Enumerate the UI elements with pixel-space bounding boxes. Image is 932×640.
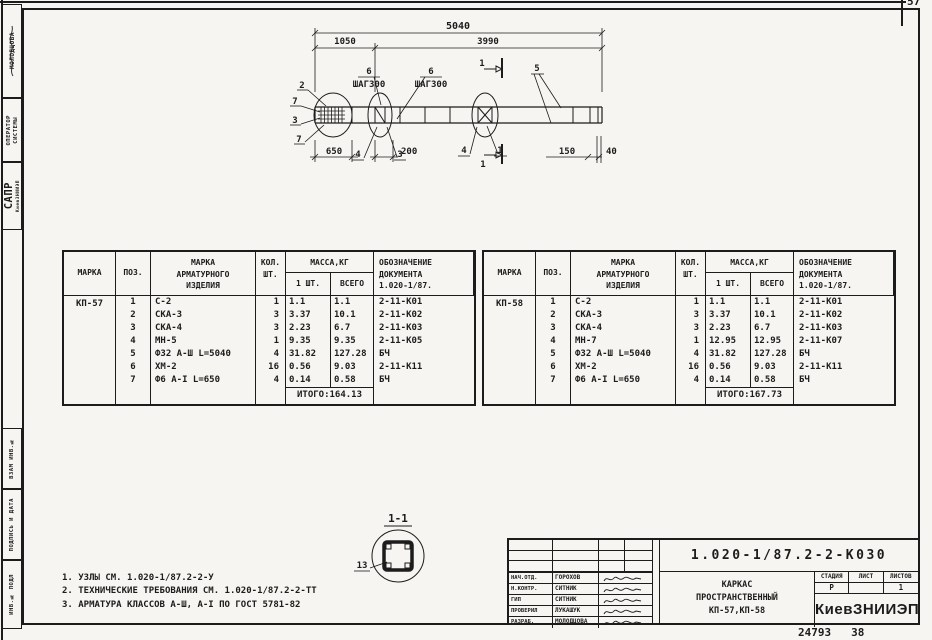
mesh-hatch (318, 107, 345, 123)
table-row: 4МН-7 112.95 12.952-11-К07 (536, 335, 894, 348)
corner-box-line (901, 0, 903, 26)
header-qty: КОЛ.ШТ. (676, 252, 706, 296)
table-row: 6ХМ-2 160.56 9.032-11-К11 (536, 361, 894, 374)
table-row: 7Ф6 А-I L=650 40.14 0.58БЧ (116, 374, 474, 387)
callout-4b: 4 (461, 146, 467, 156)
staff-row: Н.КОНТР. СИТНИК (509, 584, 652, 595)
table-row: 6ХМ-2 160.56 9.032-11-К11 (116, 361, 474, 374)
table-row: 2СКА-3 33.37 10.12-11-К02 (116, 309, 474, 322)
stamp-sapr-box: САПР КиевЗНИИЭП (2, 162, 22, 230)
callout-2: 2 (299, 81, 304, 91)
stamp-operator-line1: ОПЕРАТОР (6, 115, 12, 146)
section-mark-top: 1 (479, 59, 484, 69)
drawing-sheet: 57 МОЛОДЦОВА ОПЕРАТОР СИСТЕМЫ САПР КиевЗ… (0, 0, 932, 640)
note-line: 2. ТЕХНИЧЕСКИЕ ТРЕБОВАНИЯ СМ. 1.020-1/87… (62, 585, 317, 599)
staff-name: ГОРОХОВ (553, 573, 599, 583)
dim-left: 1050 (334, 37, 356, 47)
table-row: 3СКА-4 32.23 6.72-11-К03 (536, 322, 894, 335)
signature (603, 596, 643, 606)
header-qty: КОЛ.ШТ. (256, 252, 286, 296)
revision-grid (509, 540, 652, 572)
table-row: 5Ф32 А-Ш L=5040 431.82 127.28БЧ (116, 348, 474, 361)
archive-number: 24793 (798, 626, 831, 639)
sheet-value (849, 583, 883, 594)
stamp-podpis-box: ПОДПИСЬ И ДАТА (2, 489, 22, 560)
organization-name: КиевЗНИИЭП (815, 594, 918, 625)
header-mark: МАРКА (64, 252, 116, 296)
header-mass: МАССА,КГ 1 ШТ.ВСЕГО (706, 252, 794, 296)
table-row: 4МН-5 19.35 9.352-11-К05 (116, 335, 474, 348)
grid-divider-line (652, 540, 653, 623)
signature (603, 585, 643, 595)
header-doc: ОБОЗНАЧЕНИЕДОКУМЕНТА1.020-1/87. (374, 252, 474, 296)
header-pos: ПОЗ. (116, 252, 151, 296)
section-detail-drawing: 1-1 13 (348, 506, 458, 598)
dim-total: 5040 (446, 21, 470, 32)
notes-list: 1. УЗЛЫ СМ. 1.020-1/87.2-2-У2. ТЕХНИЧЕСК… (62, 531, 317, 612)
mark-cell: КП-57 (64, 296, 116, 404)
stamp-podpis: ПОДПИСЬ И ДАТА (9, 498, 15, 551)
stamp-operator-line2: СИСТЕМЫ (13, 117, 19, 144)
note-line: 1. УЗЛЫ СМ. 1.020-1/87.2-2-У (62, 572, 317, 586)
callout-7a: 7 (292, 97, 297, 107)
table-row: 5Ф32 А-Ш L=5040 431.82 127.28БЧ (536, 348, 894, 361)
dim-150: 150 (559, 147, 575, 157)
callout-7b: 7 (296, 135, 301, 145)
section-bar-label: 13 (357, 561, 368, 571)
signature (603, 618, 643, 628)
signature (603, 574, 643, 584)
staff-signature-cell (599, 606, 652, 616)
staff-name: СИТНИК (553, 595, 599, 605)
staff-row: РАЗРАБ. МОЛОДЦОВА (509, 617, 652, 628)
dim-40: 40 (606, 147, 617, 157)
stamp-vzam: ВЗАМ ИНВ.№ (9, 438, 15, 479)
staff-name: СИТНИК (553, 584, 599, 594)
stamp-vzam-box: ВЗАМ ИНВ.№ (2, 428, 22, 489)
staff-role: Н.КОНТР. (509, 584, 553, 594)
table-footer: ИТОГО:164.13 (116, 387, 474, 404)
stage-value: Р (815, 583, 849, 594)
spec-table-kp57: МАРКА ПОЗ. МАРКААРМАТУРНОГОИЗДЕЛИЯ КОЛ.Ш… (62, 250, 476, 406)
staff-signature-cell (599, 584, 652, 594)
table-row: 2СКА-3 33.37 10.12-11-К02 (536, 309, 894, 322)
rebar-corner-dots (386, 544, 410, 568)
header-item: МАРКААРМАТУРНОГОИЗДЕЛИЯ (151, 252, 256, 296)
itogo-total: ИТОГО:167.73 (706, 387, 794, 404)
itogo-total: ИТОГО:164.13 (286, 387, 374, 404)
stamp-inv-box: ИНВ.№ ПОДЛ (2, 560, 22, 629)
staff-row: ПРОВЕРИЛ ЛУКАШУК (509, 606, 652, 617)
paper-edge-top (0, 1, 906, 3)
beam-elevation-drawing: 5040 1050 3990 (280, 16, 645, 168)
sheets-label: ЛИСТОВ (884, 572, 918, 583)
staff-signature-cell (599, 617, 652, 628)
drawing-title: КАРКАС ПРОСТРАНСТВЕННЫЙ КП-57,КП-58 (660, 572, 815, 627)
stage-sheet-grid: СТАДИЯ ЛИСТ ЛИСТОВ Р 1 (815, 572, 918, 594)
dim-200: 200 (401, 147, 417, 157)
sheets-value: 1 (884, 583, 918, 594)
stamp-operator-box: ОПЕРАТОР СИСТЕМЫ (2, 98, 22, 162)
header-mass: МАССА,КГ 1 ШТ.ВСЕГО (286, 252, 374, 296)
dim-650: 650 (326, 147, 342, 157)
staff-row: ГИП СИТНИК (509, 595, 652, 606)
header-mark: МАРКА (484, 252, 536, 296)
spec-table-kp58: МАРКА ПОЗ. МАРКААРМАТУРНОГОИЗДЕЛИЯ КОЛ.Ш… (482, 250, 896, 406)
staff-role: РАЗРАБ. (509, 617, 553, 628)
corner-page-number: 57 (907, 0, 920, 8)
staff-name: МОЛОДЦОВА (553, 617, 599, 628)
staff-signatures: НАЧ.ОТД. ГОРОХОВ Н.КОНТР. СИТНИК (509, 572, 652, 627)
mark-cell: КП-58 (484, 296, 536, 404)
callout-6b: 6 (428, 67, 433, 77)
staff-role: ПРОВЕРИЛ (509, 606, 553, 616)
sheet-number: 38 (851, 626, 864, 639)
signature-vertical (8, 22, 16, 80)
dim-right: 3990 (477, 37, 499, 47)
stirrup-ticks (352, 107, 598, 123)
table-row: 7Ф6 А-I L=650 40.14 0.58БЧ (536, 374, 894, 387)
staff-role: НАЧ.ОТД. (509, 573, 553, 583)
callout-6a: 6 (366, 67, 371, 77)
stamp-inv: ИНВ.№ ПОДЛ (9, 574, 15, 615)
stage-label: СТАДИЯ (815, 572, 849, 583)
callout-4a: 4 (355, 150, 361, 160)
table-row: 3СКА-4 32.23 6.72-11-К03 (116, 322, 474, 335)
staff-signature-cell (599, 595, 652, 605)
archive-numbers: 24793 38 (798, 626, 864, 639)
stamp-sapr-org: КиевЗНИИЭП (16, 180, 21, 212)
header-doc: ОБОЗНАЧЕНИЕДОКУМЕНТА1.020-1/87. (794, 252, 894, 296)
section-mark-bottom: 1 (480, 160, 485, 170)
staff-role: ГИП (509, 595, 553, 605)
table-row: 1С-2 11.1 1.12-11-К01 (116, 296, 474, 309)
table-row: 1С-2 11.1 1.12-11-К01 (536, 296, 894, 309)
document-number: 1.020-1/87.2-2-К030 (660, 540, 918, 572)
table-footer: ИТОГО:167.73 (536, 387, 894, 404)
sheet-label: ЛИСТ (849, 572, 883, 583)
stamp-sapr: САПР (3, 182, 15, 209)
step-label-1: ШАГ300 (353, 80, 386, 90)
callout-3a: 3 (292, 116, 297, 126)
staff-name: ЛУКАШУК (553, 606, 599, 616)
table-body: 1С-2 11.1 1.12-11-К01 2СКА-3 33.37 10.12… (536, 296, 894, 387)
title-block: НАЧ.ОТД. ГОРОХОВ Н.КОНТР. СИТНИК (507, 538, 920, 625)
beam-outline (315, 107, 602, 123)
stamp-author-box: МОЛОДЦОВА (2, 4, 22, 98)
note-line: 3. АРМАТУРА КЛАССОВ А-Ш, А-I ПО ГОСТ 578… (62, 599, 317, 613)
staff-row: НАЧ.ОТД. ГОРОХОВ (509, 573, 652, 584)
step-label-2: ШАГ300 (415, 80, 448, 90)
header-pos: ПОЗ. (536, 252, 571, 296)
table-body: 1С-2 11.1 1.12-11-К01 2СКА-3 33.37 10.12… (116, 296, 474, 387)
callout-5: 5 (534, 64, 539, 74)
signature (603, 607, 643, 617)
staff-signature-cell (599, 573, 652, 583)
section-title: 1-1 (388, 512, 408, 525)
header-item: МАРКААРМАТУРНОГОИЗДЕЛИЯ (571, 252, 676, 296)
